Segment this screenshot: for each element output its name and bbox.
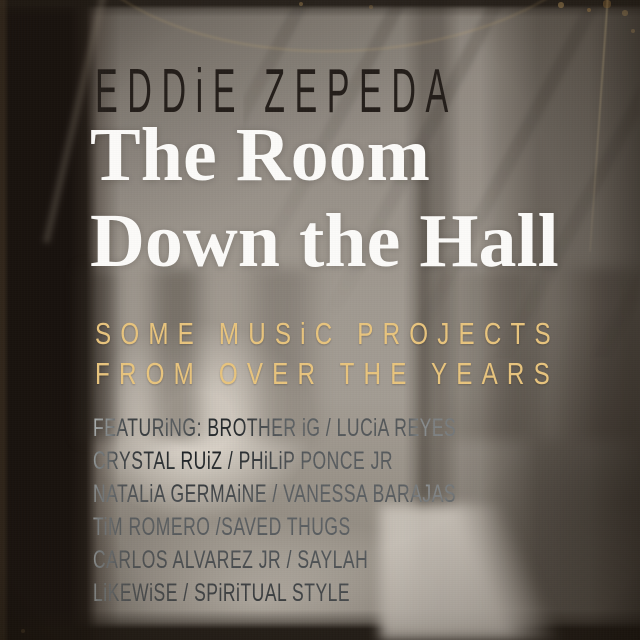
credit-line: CARLOS ALVAREZ JR / SAYLAH (93, 544, 456, 577)
album-title: The Room Down the Hall (90, 112, 559, 284)
album-title-line-2: Down the Hall (90, 198, 559, 284)
credit-line: CRYSTAL RUiZ / PHiLiP PONCE JR (93, 445, 456, 478)
credit-line: TiM ROMERO /SAVED THUGS (93, 511, 456, 544)
album-title-line-1: The Room (90, 112, 559, 198)
album-cover: EDDiE ZEPEDA The Room Down the Hall SOME… (0, 0, 640, 640)
credit-line: LiKEWiSE / SPiRiTUAL STYLE (93, 577, 456, 610)
credit-line: FEATURiNG: BROTHER iG / LUCiA REYES (93, 412, 456, 445)
featuring-credits: FEATURiNG: BROTHER iG / LUCiA REYES CRYS… (93, 412, 612, 610)
subtitle-line-2: FROM OVER THE YEARS (95, 354, 560, 394)
subtitle-line-1: SOME MUSiC PROJECTS (95, 314, 560, 354)
cover-text: EDDiE ZEPEDA The Room Down the Hall SOME… (0, 0, 640, 640)
credit-line: NATALiA GERMAiNE / VANESSA BARAJAS (93, 478, 456, 511)
album-subtitle: SOME MUSiC PROJECTS FROM OVER THE YEARS (95, 314, 560, 394)
